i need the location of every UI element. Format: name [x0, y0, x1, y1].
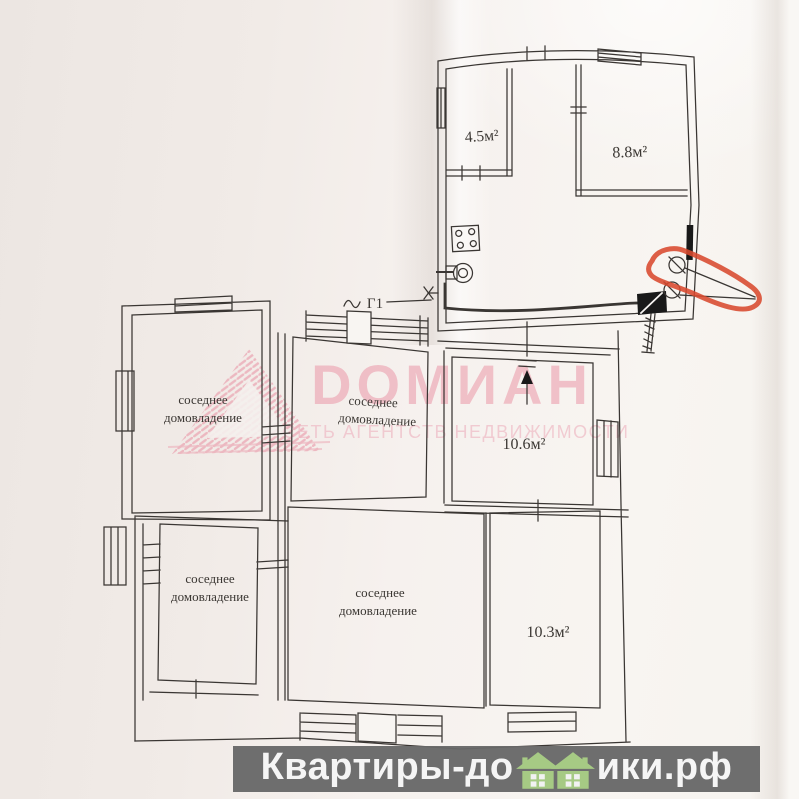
neighbor-label-1-line2: домовладение: [164, 410, 242, 425]
room-103-area-label: 10.3м²: [527, 624, 570, 641]
neighbor-label-2-line1: соседнее: [185, 571, 234, 586]
room-45-area-label: 4.5м²: [464, 127, 499, 146]
stove-icon: [451, 225, 479, 251]
gas-line-break-symbol: [344, 300, 360, 307]
neighbor-label-4-line2: домовладение: [339, 603, 417, 618]
watermark-tagline-text: СЕТЬ АГЕНТСТВ НЕДВИЖИМОСТИ: [283, 422, 630, 442]
porch-block: [347, 311, 371, 344]
bottom-left-building-walls: [104, 516, 288, 741]
gas-riser-pipe: [642, 314, 655, 353]
agency-watermark: DОМИАН СЕТЬ АГЕНТСТВ НЕДВИЖИМОСТИ: [168, 349, 630, 454]
neighbor-label-1-line1: соседнее: [178, 392, 227, 407]
floor-plan-drawing: DОМИАН СЕТЬ АГЕНТСТВ НЕДВИЖИМОСТИ: [0, 0, 799, 799]
site-name-suffix: ики.рф: [597, 746, 733, 789]
house-icon: [550, 751, 596, 791]
neighbor-label-4-line1: соседнее: [355, 585, 404, 600]
neighbor-label-2-line2: домовладение: [171, 589, 249, 604]
room-106-area-label: 10.6м²: [503, 436, 546, 453]
steps-block: [358, 713, 396, 743]
neighbor-label-3-line1: соседнее: [348, 393, 398, 411]
top-building: 4.5м² 8.8м²: [424, 46, 755, 353]
scanned-floor-plan-page: DОМИАН СЕТЬ АГЕНТСТВ НЕДВИЖИМОСТИ: [0, 0, 799, 799]
room-88-area-label: 8.8м²: [612, 143, 648, 161]
valve-icon: [424, 287, 438, 299]
bottom-left-neighbor-building: соседнее домовладение: [104, 516, 288, 741]
house-letter-icons: [515, 751, 596, 791]
top-building-walls: [437, 46, 699, 331]
site-watermark-banner: Квартиры-до ики.рф: [233, 746, 760, 792]
gas-line-label: Г1: [367, 296, 383, 312]
gas-pipe: [445, 284, 637, 311]
chimney-block: [637, 291, 667, 315]
gas-meter-icon: [437, 264, 473, 283]
site-name-prefix: Квартиры-до: [261, 746, 514, 789]
